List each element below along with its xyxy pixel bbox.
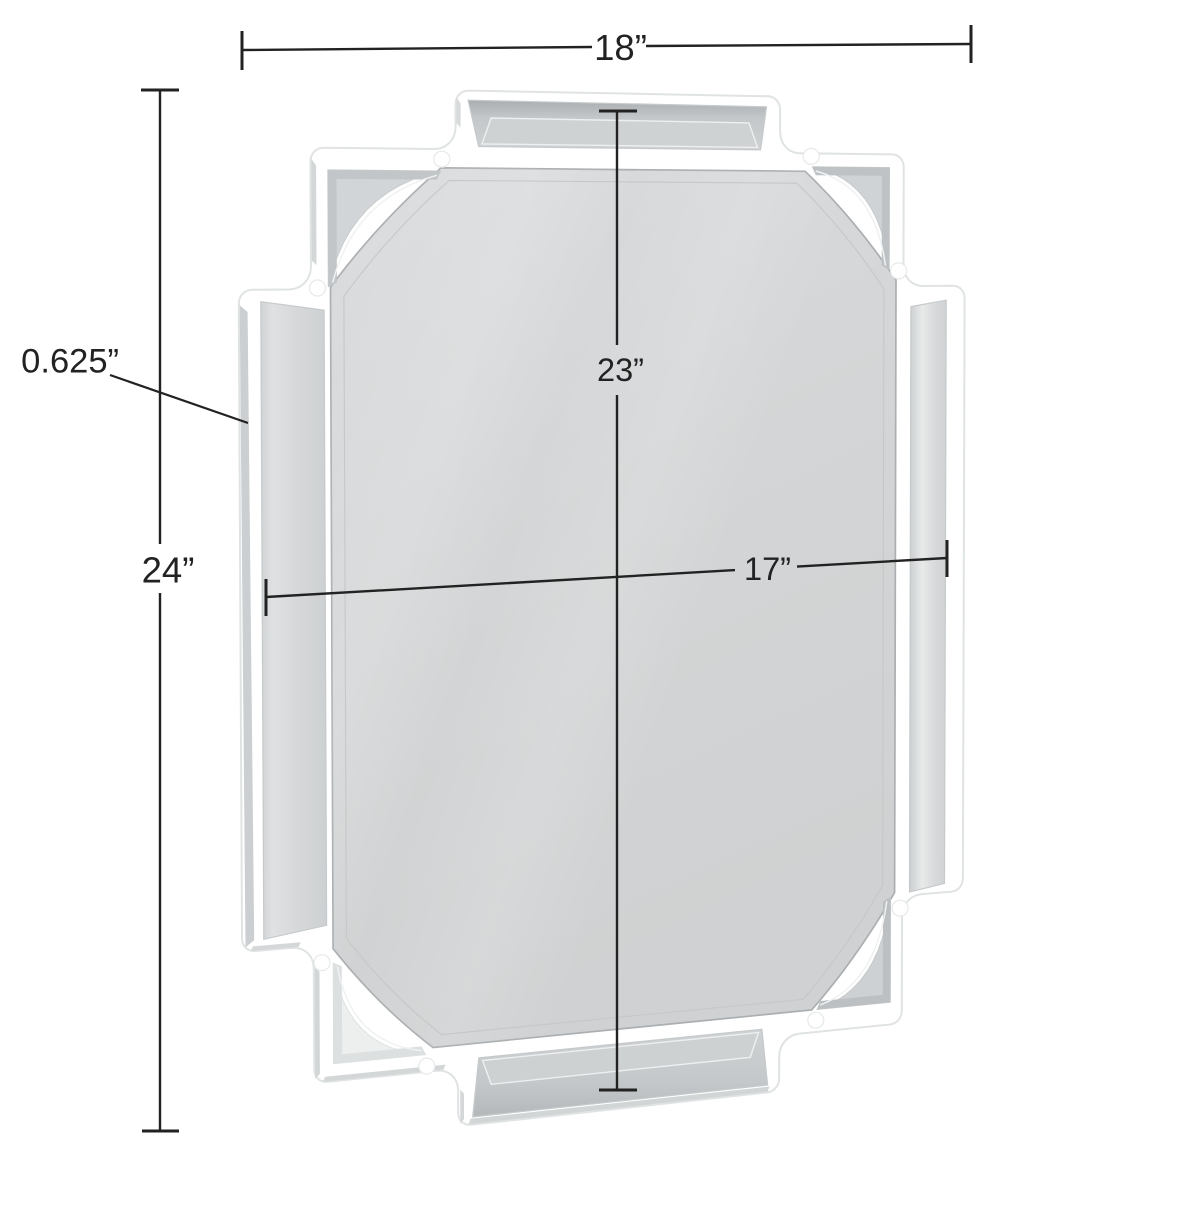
svg-text:23”: 23” <box>597 352 644 388</box>
svg-text:24”: 24” <box>142 550 195 591</box>
svg-text:17”: 17” <box>744 551 791 587</box>
svg-text:0.625”: 0.625” <box>21 343 119 381</box>
svg-text:18”: 18” <box>594 27 647 68</box>
